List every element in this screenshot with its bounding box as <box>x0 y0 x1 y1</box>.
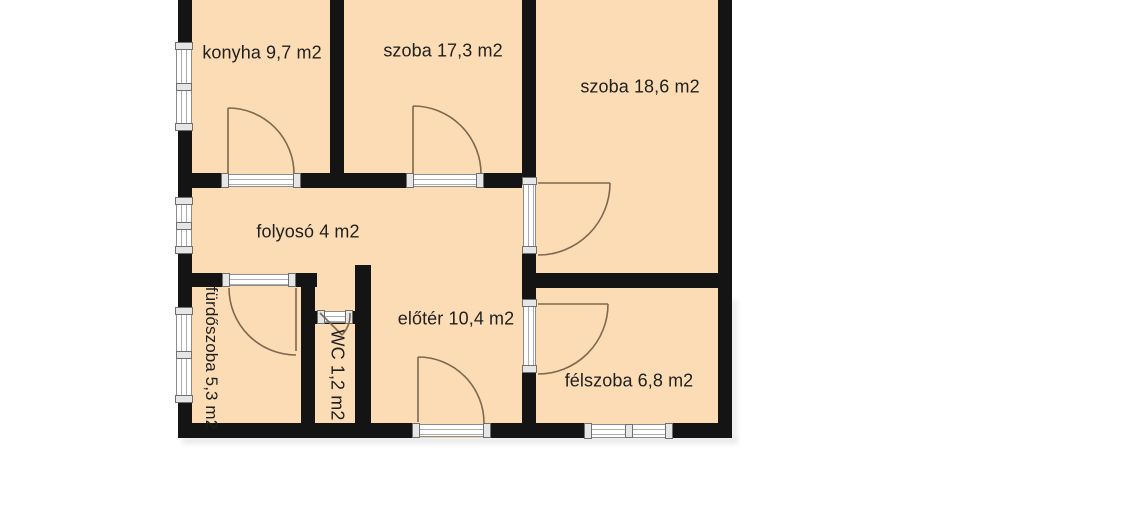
wall-shadow <box>732 300 736 438</box>
room-label-szoba-17: szoba 17,3 m2 <box>383 41 502 62</box>
window-frame-cap <box>584 423 592 439</box>
window-frame-cap <box>625 424 633 438</box>
floor-plan-image: konyha 9,7 m2szoba 17,3 m2szoba 18,6 m2f… <box>0 0 1139 515</box>
window-frame-cap <box>176 222 192 230</box>
door-threshold <box>407 174 483 187</box>
room-label-furdoszoba: fürdőszoba 5,3 m2 <box>201 287 221 430</box>
wall-segment <box>483 173 522 188</box>
door-jamb <box>522 365 537 373</box>
window-frame-cap <box>175 307 193 315</box>
door-jamb <box>345 310 353 324</box>
wall-segment <box>355 265 371 438</box>
room-label-felszoba: félszoba 6,8 m2 <box>565 371 694 392</box>
door-jamb <box>293 173 301 188</box>
door-threshold <box>413 424 490 437</box>
door-jamb <box>406 173 414 188</box>
door-jamb <box>522 246 537 254</box>
wall-segment <box>178 0 192 43</box>
wall-segment <box>490 423 585 438</box>
window-frame-cap <box>175 123 193 131</box>
door-threshold <box>523 300 536 372</box>
wall-segment <box>522 0 536 178</box>
wall-segment <box>672 423 732 438</box>
window-frame-cap <box>175 246 193 254</box>
door-jamb <box>522 177 537 185</box>
window-frame-cap <box>665 423 673 439</box>
wall-segment <box>178 173 222 188</box>
window-frame-cap <box>175 395 193 403</box>
door-jamb <box>288 273 296 287</box>
wall-segment <box>718 0 732 438</box>
door-threshold <box>222 174 300 187</box>
room-label-wc: WC 1,2 m2 <box>327 330 348 421</box>
wall-segment <box>330 0 344 188</box>
window-frame-cap <box>175 197 193 205</box>
wall-shadow <box>182 438 738 443</box>
door-jamb <box>483 423 491 438</box>
floor-plan: konyha 9,7 m2szoba 17,3 m2szoba 18,6 m2f… <box>0 0 1139 515</box>
door-threshold <box>523 178 536 253</box>
room-label-folyoso: folyosó 4 m2 <box>256 222 359 243</box>
window-frame-cap <box>176 351 192 359</box>
wall-segment <box>300 173 407 188</box>
window-frame-cap <box>176 83 192 91</box>
door-jamb <box>222 273 230 287</box>
wall-segment <box>301 273 315 438</box>
wall-segment <box>178 273 223 287</box>
door-threshold <box>223 274 295 286</box>
door-jamb <box>476 173 484 188</box>
door-jamb <box>522 299 537 307</box>
wall-segment <box>522 253 536 300</box>
room-label-konyha: konyha 9,7 m2 <box>202 43 321 64</box>
door-jamb <box>412 423 420 438</box>
room-label-szoba-18: szoba 18,6 m2 <box>580 77 699 98</box>
room-label-eloter: előtér 10,4 m2 <box>398 309 514 330</box>
door-jamb <box>317 310 325 324</box>
door-jamb <box>221 173 229 188</box>
window-frame-cap <box>175 42 193 50</box>
wall-segment <box>536 273 732 288</box>
